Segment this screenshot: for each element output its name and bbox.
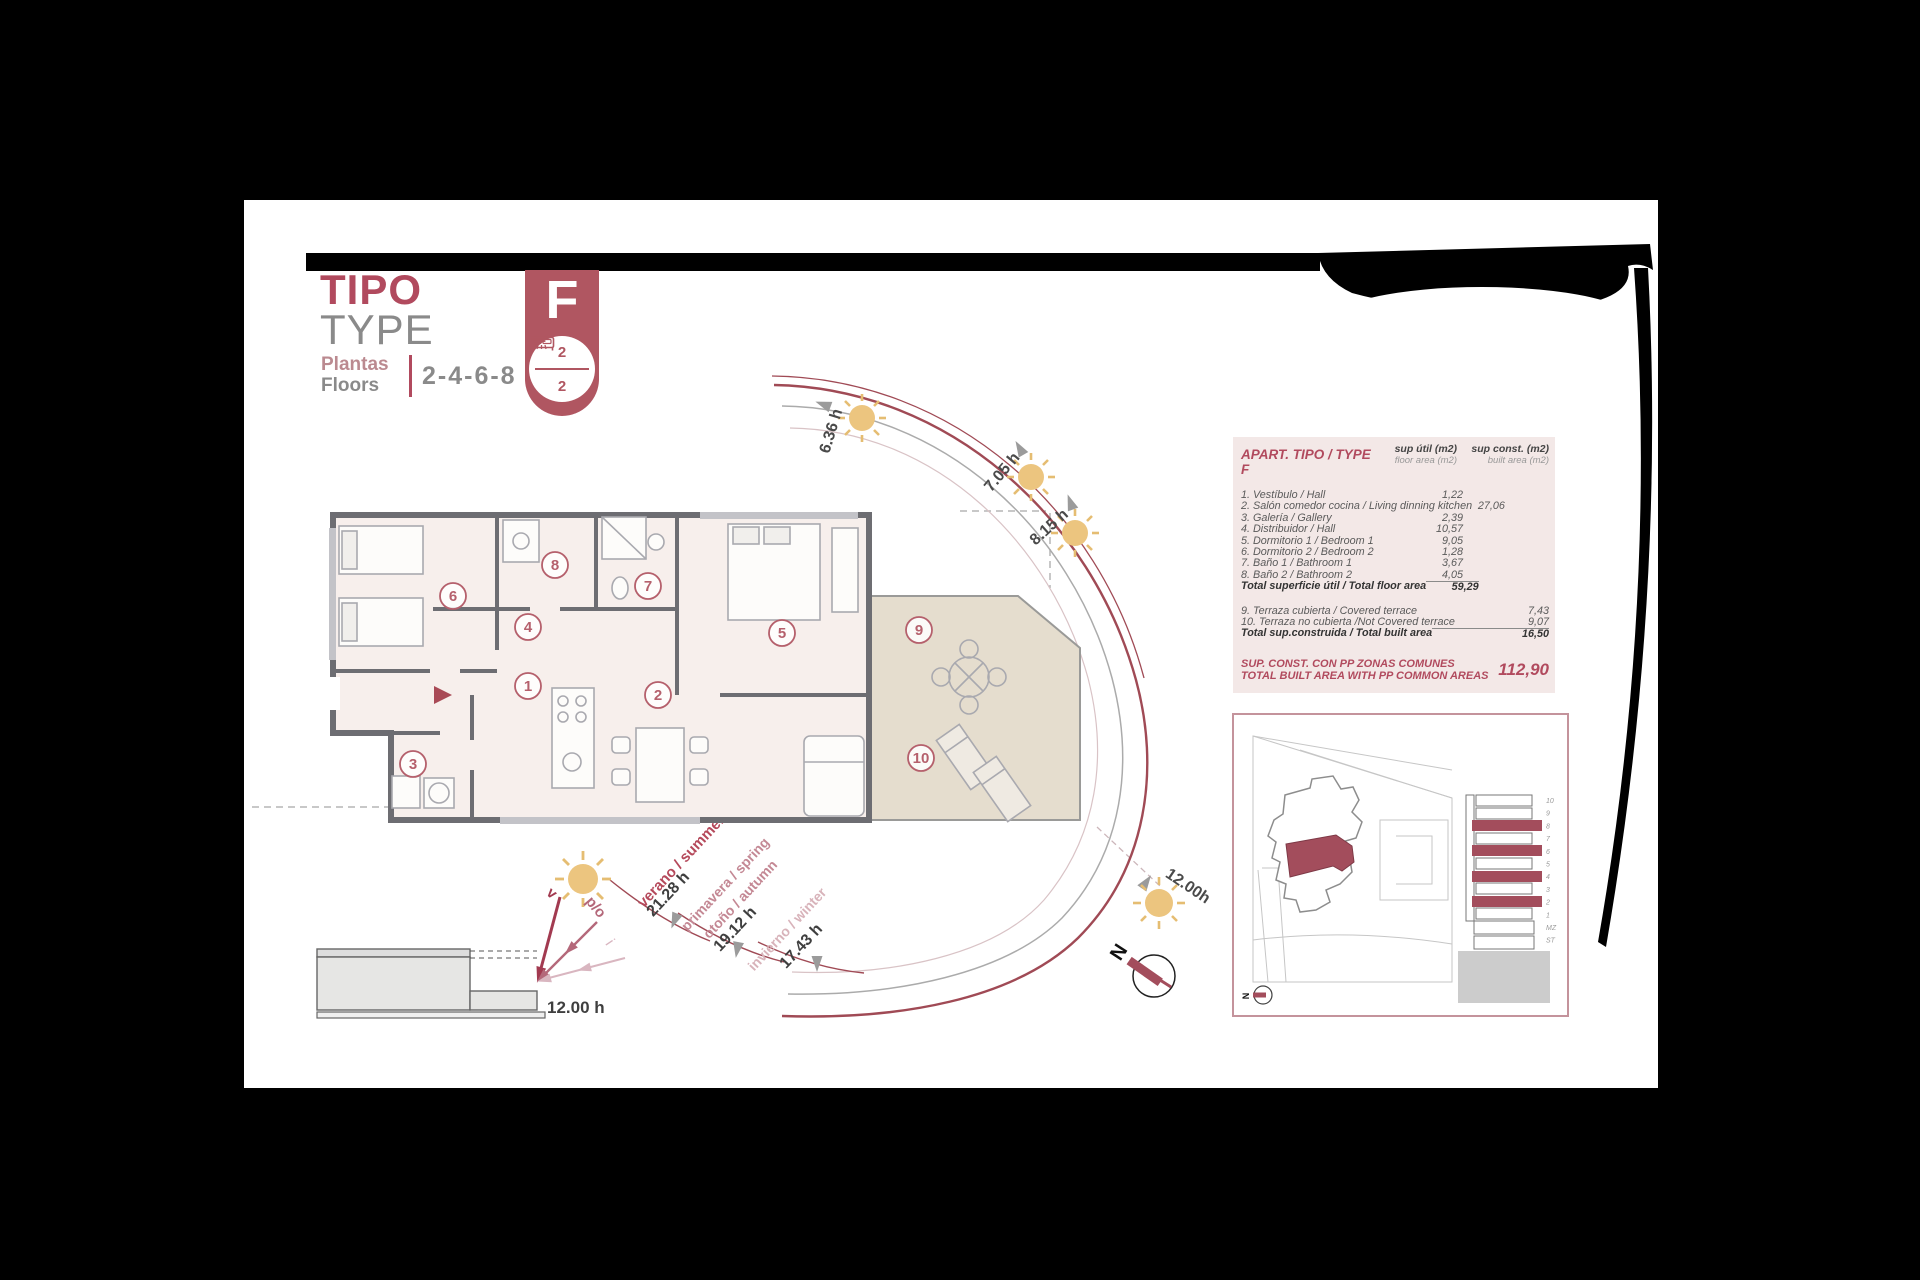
sunrise-time-1: 6.36 h [817, 407, 847, 455]
room-badge: 5 [769, 620, 795, 646]
bathrooms-count: 2 [529, 370, 595, 402]
room-badge: 4 [515, 614, 541, 640]
floor-label: 4 [1546, 874, 1550, 881]
section-noon-label: 12.00 h [547, 998, 605, 1017]
type-letter: F [525, 272, 599, 328]
sun-icon [555, 851, 611, 907]
table-header: APART. TIPO / TYPE F sup útil (m2) floor… [1241, 444, 1549, 477]
building-section [317, 957, 470, 1010]
floor-label: MZ [1546, 925, 1557, 932]
north-label: N [1106, 940, 1132, 964]
sofa [804, 736, 864, 816]
svg-text:6: 6 [449, 588, 457, 605]
section-diagram: v p/o i 12.00 h [317, 851, 625, 1018]
highlighted-floor-6 [1472, 845, 1542, 856]
site-plan-panel: 10987654321MZST N [1233, 714, 1568, 1016]
room-badge: 3 [400, 751, 426, 777]
room-badge: 6 [440, 583, 466, 609]
season-labels: verano / summer 21.28 h primavera / spri… [634, 812, 830, 974]
common-areas-value: 112,90 [1498, 660, 1549, 680]
site-north-label: N [1241, 993, 1251, 1000]
badge-circle: 2 2 [529, 336, 595, 402]
room-badge: 9 [906, 617, 932, 643]
wardrobe [832, 528, 858, 612]
brochure-page: 6.36 h 7.05 h 8.15 h 12.00h verano / sum… [0, 0, 1920, 1280]
noon-ray-line [1097, 827, 1160, 886]
type-badge: F 2 2 [525, 270, 599, 416]
ground-mass [1458, 951, 1550, 1003]
svg-text:7: 7 [644, 578, 652, 595]
highlighted-floor-4 [1472, 871, 1542, 882]
floor-label: ST [1546, 938, 1556, 945]
table-title: APART. TIPO / TYPE F [1241, 444, 1373, 477]
floor-label: 6 [1546, 849, 1550, 856]
col-built-area: sup const. (m2) built area (m2) [1457, 444, 1549, 466]
chair [612, 737, 630, 753]
bedrooms-number: 2 [558, 344, 566, 361]
building-elevation [1458, 795, 1550, 1003]
svg-text:8: 8 [551, 557, 559, 574]
floor-plan: 1 2 3 4 5 6 7 8 9 10 [326, 512, 1080, 824]
sun-icon [838, 394, 886, 442]
dining-table [636, 728, 684, 802]
kitchen-sink [563, 753, 581, 771]
svg-text:5: 5 [778, 625, 786, 642]
terrace-section [470, 991, 537, 1010]
highlighted-floor-8 [1472, 820, 1542, 831]
floor-label: 3 [1546, 887, 1550, 894]
sink [648, 534, 664, 550]
room-badge: 8 [542, 552, 568, 578]
chair [612, 769, 630, 785]
sink [513, 533, 529, 549]
room-badge: 10 [908, 745, 934, 771]
common-label-en: TOTAL BUILT AREA WITH PP COMMON AREAS [1241, 670, 1498, 683]
floor-label: 10 [1546, 798, 1554, 805]
floor-label: 2 [1545, 900, 1550, 907]
svg-text:2: 2 [654, 687, 662, 704]
floor-label: 5 [1546, 862, 1550, 869]
floors-label-en: Floors [321, 375, 389, 396]
area-table: APART. TIPO / TYPE F sup útil (m2) floor… [1233, 437, 1555, 693]
bathrooms-number: 2 [558, 378, 566, 395]
floor-label: 8 [1546, 823, 1550, 830]
chair [690, 769, 708, 785]
page-title-en: TYPE [320, 306, 434, 354]
table-row: 4. Distribuidor / Hall10,57 [1241, 524, 1549, 535]
svg-text:10: 10 [913, 750, 930, 767]
highlighted-floor-2 [1472, 896, 1542, 907]
common-label-es: SUP. CONST. CON PP ZONAS COMUNES [1241, 658, 1498, 671]
svg-text:3: 3 [409, 756, 417, 773]
ray-label-po: p/o [582, 893, 609, 921]
floors-divider [409, 355, 412, 397]
shower-icon [529, 336, 553, 353]
floor-label: 1 [1546, 912, 1550, 919]
floors-label-es: Plantas [321, 354, 389, 375]
svg-text:1: 1 [524, 678, 532, 695]
plan-graphics: 6.36 h 7.05 h 8.15 h 12.00h verano / sum… [0, 0, 1920, 1280]
room-badge: 2 [645, 682, 671, 708]
floors-label: Plantas Floors [321, 354, 389, 396]
room-badge: 7 [635, 573, 661, 599]
toilet [612, 577, 628, 599]
cabinet [392, 776, 420, 808]
room-badge: 1 [515, 673, 541, 699]
ray-label-i: i [602, 935, 617, 950]
total-floor-area-row: Total superficie útil / Total floor area… [1241, 581, 1549, 593]
common-areas-total: SUP. CONST. CON PP ZONAS COMUNES TOTAL B… [1241, 658, 1549, 683]
svg-text:4: 4 [524, 619, 533, 636]
svg-text:9: 9 [915, 622, 923, 639]
floor-label: 9 [1546, 811, 1550, 818]
col-floor-area: sup útil (m2) floor area (m2) [1373, 444, 1457, 466]
total-built-area-row: Total sup.construida / Total built area1… [1241, 628, 1549, 640]
floors-value: 2-4-6-8 [422, 362, 517, 391]
chair [690, 737, 708, 753]
entry-opening [326, 677, 340, 710]
table-rows: 1. Vestíbulo / Hall1,22 2. Salón comedor… [1241, 490, 1549, 641]
compass: N [1106, 940, 1175, 997]
